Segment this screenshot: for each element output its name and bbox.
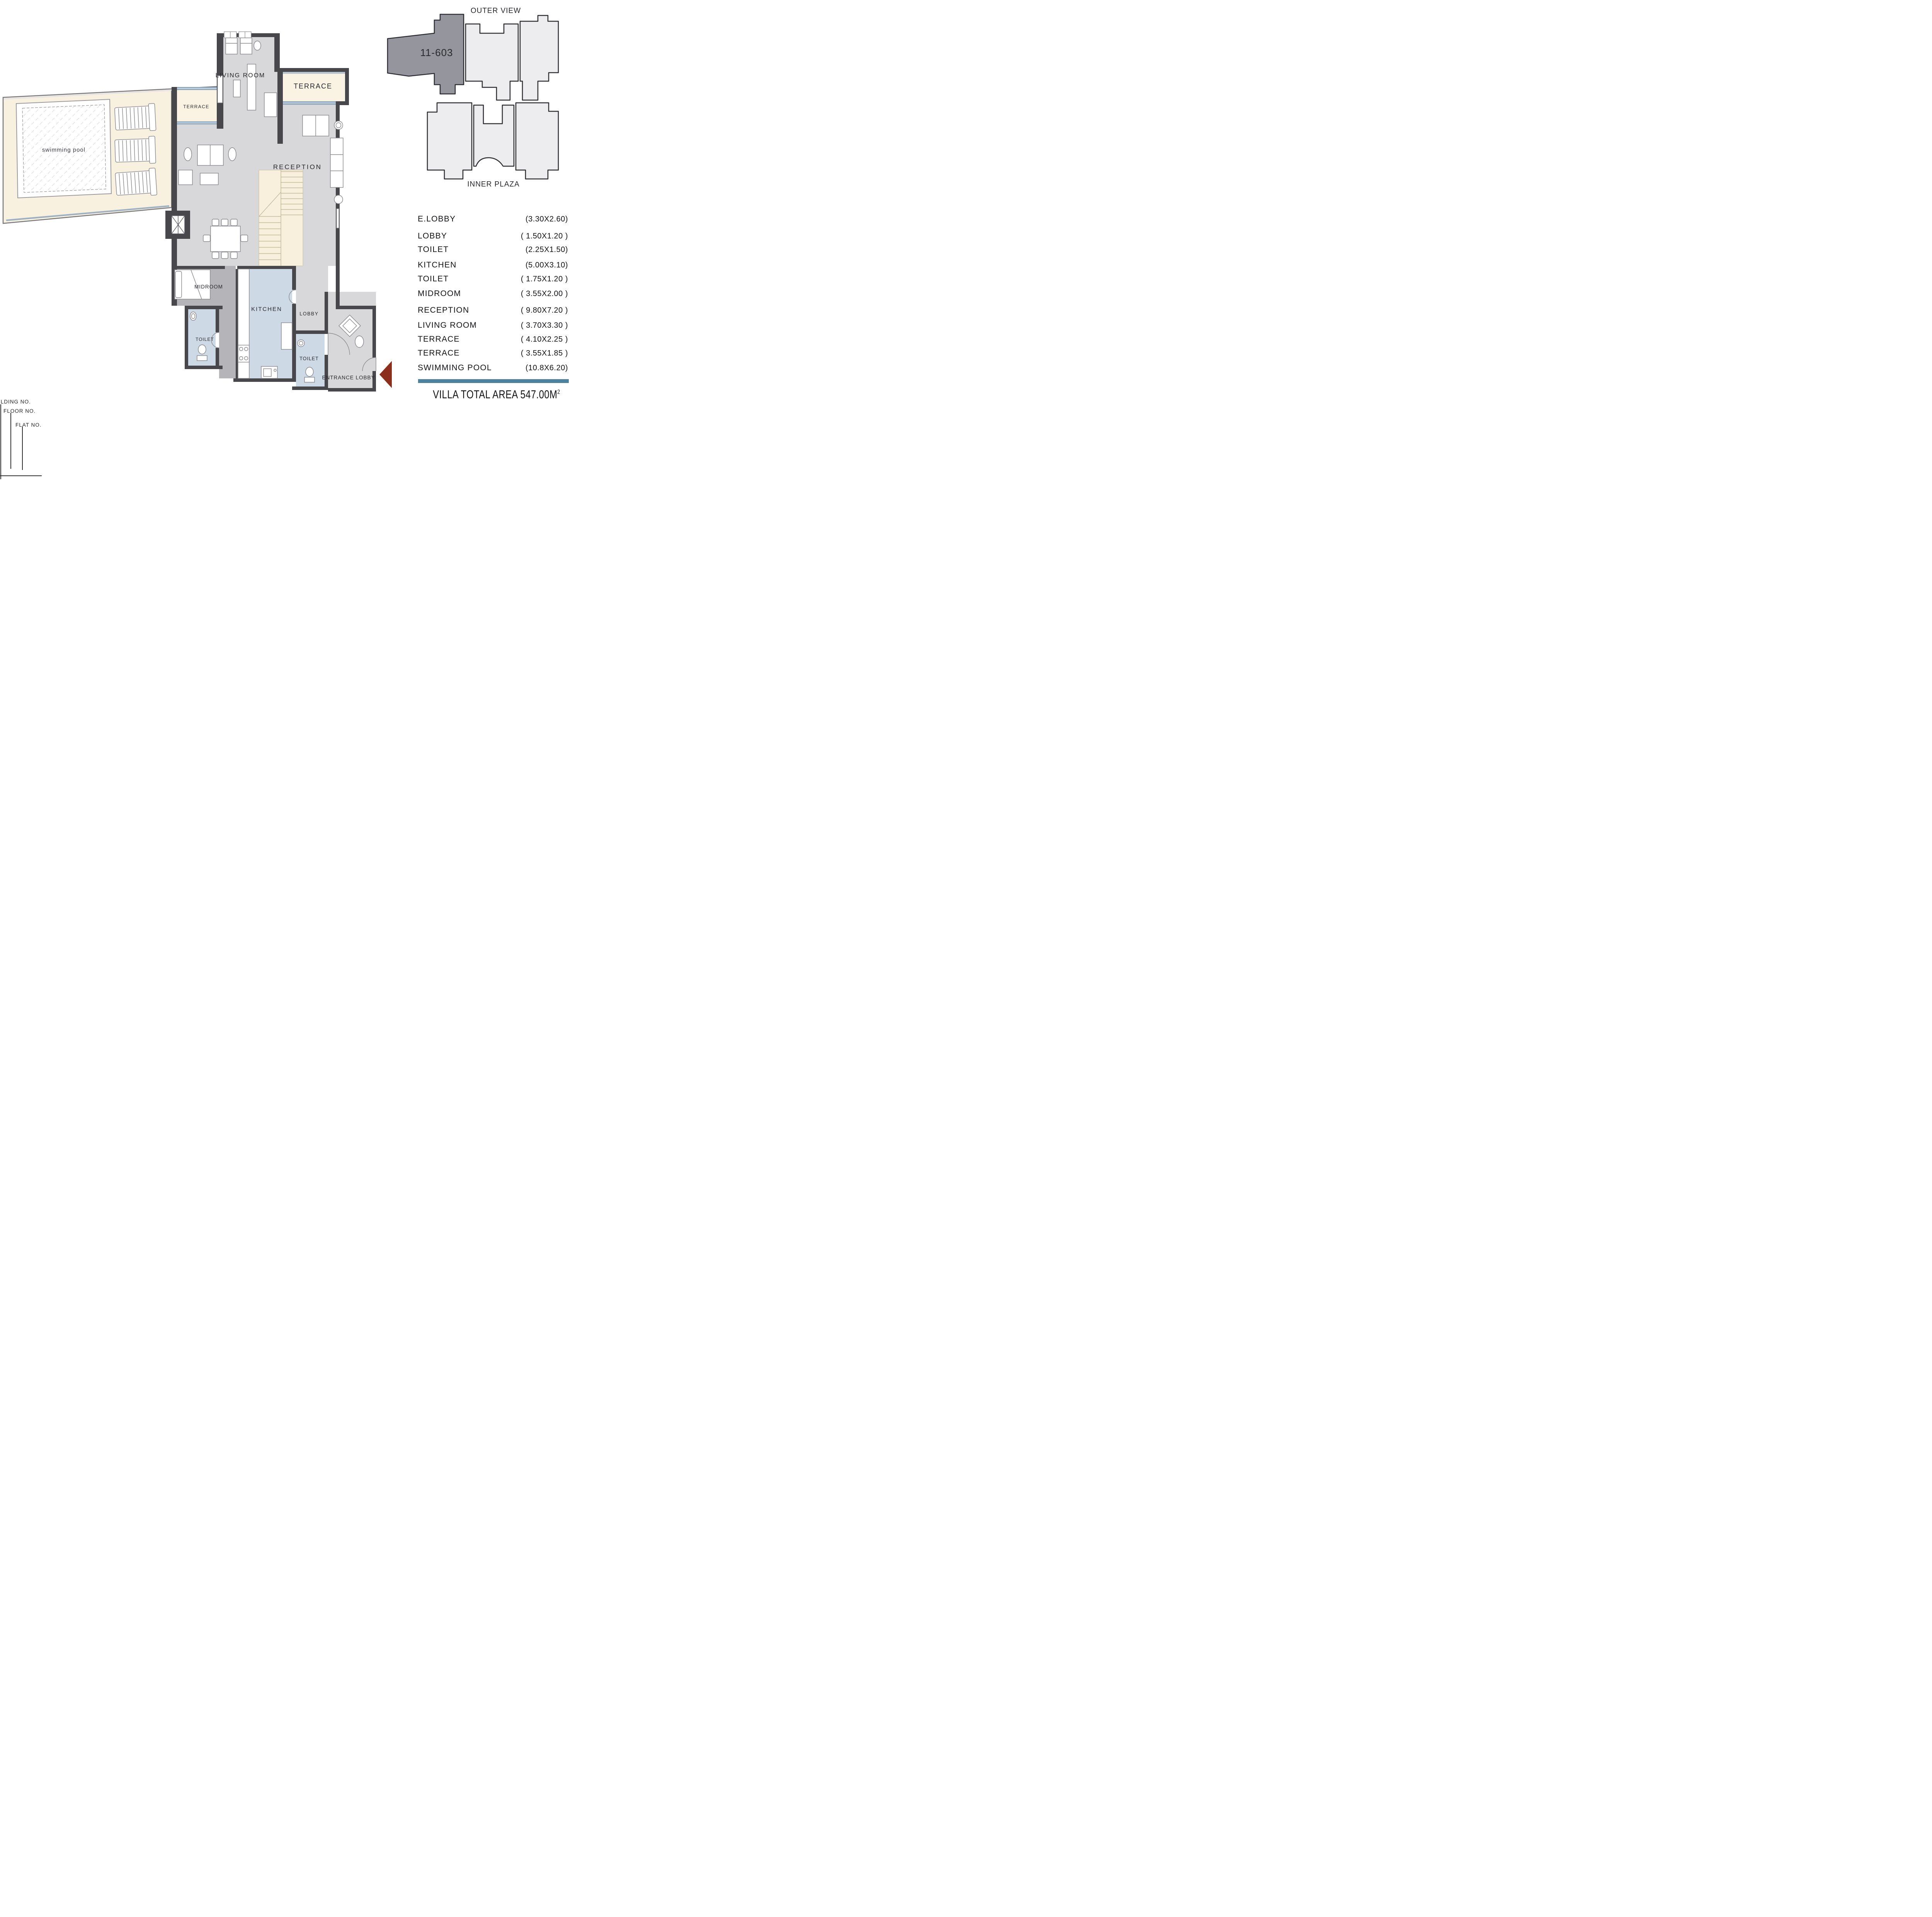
staircase <box>259 170 303 266</box>
room-dims: ( 3.70X3.30 ) <box>521 321 568 330</box>
villa-floor-plan-sheet: swimming pool TERRACE LIVING ROOM TERRAC… <box>0 0 576 479</box>
pillow <box>175 271 182 298</box>
room-name: KITCHEN <box>418 260 457 270</box>
dining-table <box>211 226 240 252</box>
key-plan-inner-plaza <box>427 103 558 179</box>
reception-label: RECEPTION <box>273 164 322 170</box>
room-name: TOILET <box>418 274 449 284</box>
lobby-label: LOBBY <box>299 312 318 317</box>
key-plan-right-mass2 <box>516 103 558 179</box>
floor-no-label: FLOOR NO. <box>3 408 36 414</box>
room-dims: (5.00X3.10) <box>526 261 568 270</box>
inner-plaza-label: INNER PLAZA <box>467 181 520 188</box>
chair <box>212 252 219 259</box>
stool <box>355 336 364 347</box>
key-plan-center-mass <box>474 105 514 166</box>
room-dims: (3.30X2.60) <box>526 215 568 224</box>
total-area-text: VILLA TOTAL AREA 547.00M <box>433 388 557 401</box>
total-area-superscript: 2 <box>557 388 560 395</box>
room-dims: ( 9.80X7.20 ) <box>521 306 568 315</box>
room-dims: ( 1.50X1.20 ) <box>521 232 568 241</box>
room-name: LIVING ROOM <box>418 321 477 330</box>
chair <box>231 252 237 259</box>
building-no-label: ILDING NO. <box>0 399 31 405</box>
key-plan-left-mass <box>427 103 472 179</box>
cabinet <box>264 93 277 117</box>
key-plan-right-mass <box>520 15 558 100</box>
armchair <box>179 170 192 185</box>
terrace-top-glazing-top <box>280 72 345 74</box>
room-name: SWIMMING POOL <box>418 363 492 373</box>
room-dims: (10.8X6.20) <box>526 364 568 373</box>
schedule-row: TOILET (2.25X1.50) <box>418 244 568 255</box>
room-name: TOILET <box>418 245 449 254</box>
room-dims: ( 3.55X2.00 ) <box>521 289 568 298</box>
key-plan-middle-mass <box>466 24 518 100</box>
schedule-row: TOILET ( 1.75X1.20 ) <box>418 274 568 284</box>
pool-lounger <box>114 103 156 132</box>
schedule-row: TERRACE ( 3.55X1.85 ) <box>418 348 568 359</box>
long-sofa <box>330 138 343 187</box>
window-reception-right <box>337 209 339 228</box>
villa-total-area: VILLA TOTAL AREA 547.00M2 <box>427 388 566 402</box>
living-table <box>233 80 240 97</box>
chair <box>221 252 228 259</box>
toilet-tank <box>304 377 315 382</box>
midroom-label: MIDROOM <box>194 284 223 289</box>
schedule-row: MIDROOM ( 3.55X2.00 ) <box>418 288 568 299</box>
schedule-row: TERRACE ( 4.10X2.25 ) <box>418 334 568 345</box>
schedule-row: SWIMMING POOL (10.8X6.20) <box>418 363 568 373</box>
chair <box>203 235 210 242</box>
side-chair <box>184 148 192 161</box>
plant <box>254 41 261 50</box>
room-name: RECEPTION <box>418 306 469 315</box>
room-dims: ( 3.55X1.85 ) <box>521 349 568 358</box>
entrance-lobby-label: ENTRANCE LOBBY <box>322 375 375 380</box>
chair <box>241 235 248 242</box>
schedule-row: LOBBY ( 1.50X1.20 ) <box>418 231 568 242</box>
kitchen-label: KITCHEN <box>251 306 282 312</box>
pool-lounger <box>115 168 157 198</box>
room-name: MIDROOM <box>418 289 461 298</box>
terrace-left-label: TERRACE <box>183 104 209 109</box>
round-table <box>334 195 343 204</box>
schedule-row: LIVING ROOM ( 3.70X3.30 ) <box>418 320 568 331</box>
living-room-label: LIVING ROOM <box>216 73 265 79</box>
key-plan-outer-view <box>388 14 558 100</box>
outer-view-label: OUTER VIEW <box>471 7 521 15</box>
pool-lounger <box>115 136 156 165</box>
schedule-row: KITCHEN (5.00X3.10) <box>418 260 568 271</box>
room-dims: ( 1.75X1.20 ) <box>521 275 568 284</box>
toilet-bowl <box>198 345 206 354</box>
schedule-divider-bar <box>418 379 569 383</box>
room-dims: ( 4.10X2.25 ) <box>521 335 568 344</box>
chair <box>212 219 219 226</box>
legend-lines <box>0 404 42 479</box>
kitchen-counter-right <box>281 323 292 349</box>
room-name: LOBBY <box>418 232 447 241</box>
toilet-bowl <box>306 367 313 376</box>
lobby-floor <box>296 266 328 334</box>
side-chair <box>228 148 236 161</box>
chair <box>231 219 237 226</box>
schedule-row: RECEPTION ( 9.80X7.20 ) <box>418 305 568 316</box>
swimming-pool-label: swimming pool <box>42 147 85 153</box>
room-name: TERRACE <box>418 349 460 358</box>
toilet-mid-label: TOILET <box>196 337 214 342</box>
tv-cabinet <box>247 64 256 110</box>
toilet-tank <box>197 356 207 361</box>
window-living-left <box>218 76 223 103</box>
terrace-top-label: TERRACE <box>294 83 332 90</box>
flat-no-label: FLAT NO. <box>15 422 42 428</box>
entrance-arrow-icon <box>379 361 392 388</box>
room-name: E.LOBBY <box>418 215 456 224</box>
room-dims: (2.25X1.50) <box>526 245 568 254</box>
toilet-entry-label: TOILET <box>299 356 319 361</box>
coffee-table <box>200 173 218 185</box>
chair <box>221 219 228 226</box>
schedule-row: E.LOBBY (3.30X2.60) <box>418 214 568 225</box>
shaft <box>172 216 185 234</box>
unit-number-label: 11-603 <box>420 48 453 58</box>
room-name: TERRACE <box>418 335 460 344</box>
